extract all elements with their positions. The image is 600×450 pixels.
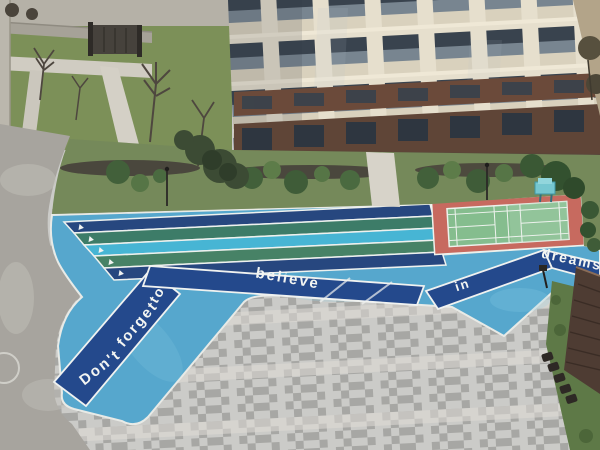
- courtyard-photo: Don't forget to believe in dreams: [0, 0, 600, 450]
- boundary-wall-strip: [0, 0, 10, 126]
- badminton-court: [432, 193, 585, 254]
- road-blotch: [0, 164, 56, 196]
- grass-tuft: [554, 324, 566, 336]
- mulch-bed: [60, 160, 200, 176]
- entry-area: [0, 0, 232, 150]
- sign-panel: [539, 265, 547, 271]
- gate-post: [137, 25, 142, 57]
- garden-lamp-head: [165, 167, 169, 171]
- glass-sheen: [314, 8, 348, 90]
- tree-canopy: [5, 3, 19, 17]
- tree-canopy: [26, 8, 38, 20]
- grass-tuft: [579, 429, 593, 443]
- apartment-building: [228, 0, 600, 155]
- grass-tuft: [551, 295, 561, 305]
- garden-lamp-head: [485, 163, 489, 167]
- gate-post: [88, 22, 93, 56]
- surface-mottle: [490, 288, 550, 312]
- courtyard-scene: Don't forget to believe in dreams: [0, 0, 600, 450]
